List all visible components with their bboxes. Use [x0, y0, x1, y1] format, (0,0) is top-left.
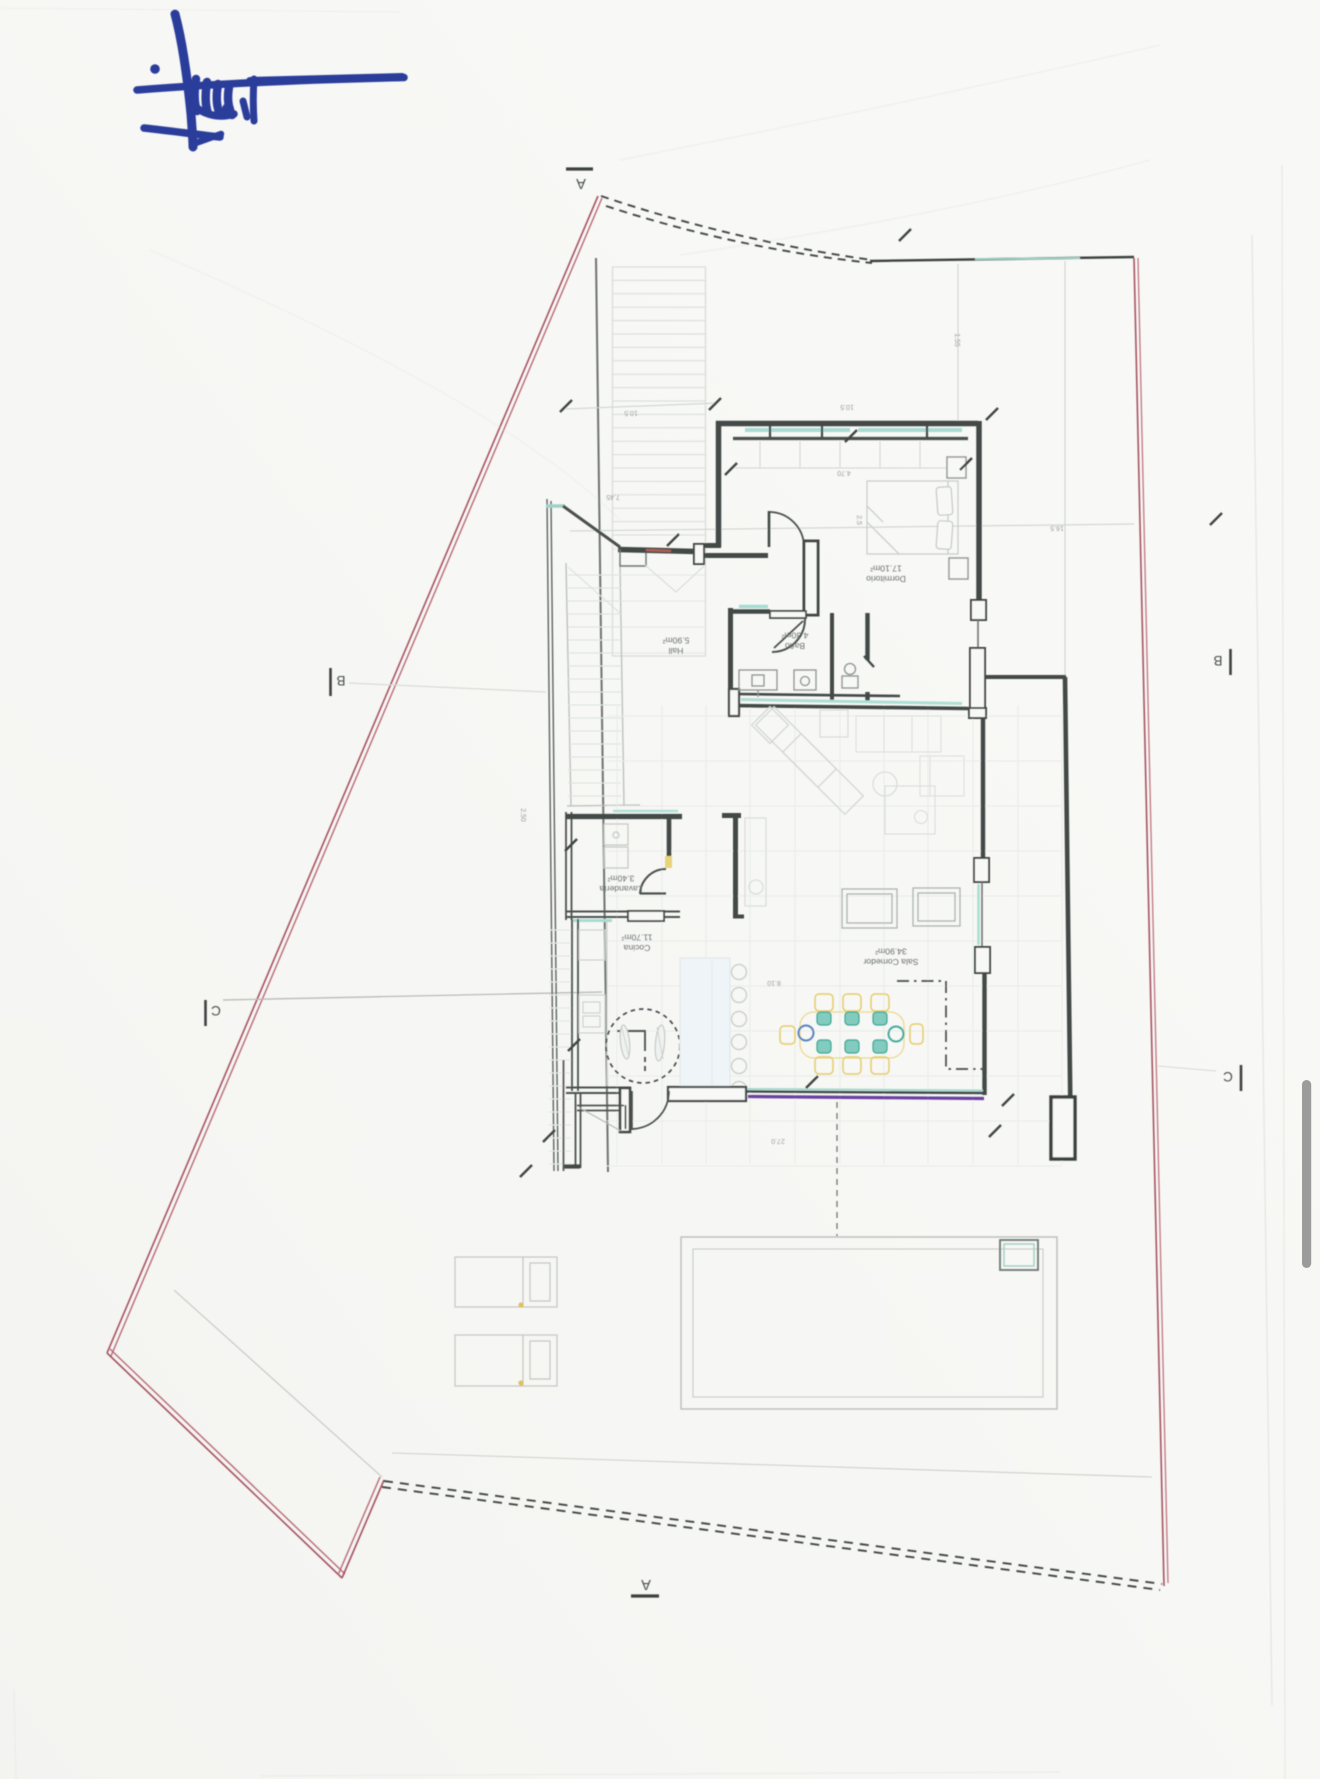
- svg-text:8.10: 8.10: [767, 979, 781, 986]
- svg-text:A: A: [641, 1576, 651, 1592]
- svg-text:11.70m²: 11.70m²: [621, 933, 652, 943]
- svg-text:10.5: 10.5: [624, 409, 638, 416]
- svg-text:5.90m²: 5.90m²: [662, 636, 689, 646]
- svg-text:Baño: Baño: [785, 641, 805, 651]
- svg-text:B: B: [336, 673, 345, 688]
- svg-text:34.90m²: 34.90m²: [875, 947, 907, 957]
- svg-text:A: A: [576, 175, 586, 191]
- svg-text:7.45: 7.45: [606, 493, 620, 500]
- svg-text:2.5: 2.5: [855, 515, 862, 525]
- svg-text:Cocina: Cocina: [623, 943, 650, 953]
- svg-text:2.50: 2.50: [519, 808, 526, 822]
- svg-text:17.10m²: 17.10m²: [870, 564, 902, 574]
- svg-text:4.30m²: 4.30m²: [781, 631, 808, 641]
- svg-text:27.0: 27.0: [771, 1137, 785, 1144]
- svg-text:1.55: 1.55: [953, 333, 960, 347]
- svg-text:C: C: [1223, 1069, 1233, 1084]
- svg-text:C: C: [211, 1003, 221, 1018]
- svg-text:Dormitorio: Dormitorio: [866, 574, 906, 584]
- svg-text:B: B: [1213, 653, 1222, 668]
- svg-text:3.40m²: 3.40m²: [607, 874, 634, 884]
- svg-text:Sala Comedor: Sala Comedor: [863, 957, 918, 967]
- svg-text:10.5: 10.5: [840, 403, 854, 410]
- svg-text:16.5: 16.5: [1050, 524, 1064, 531]
- svg-text:Lavandería: Lavandería: [599, 884, 642, 894]
- svg-text:4.70: 4.70: [837, 469, 851, 476]
- svg-text:Hall: Hall: [669, 646, 684, 656]
